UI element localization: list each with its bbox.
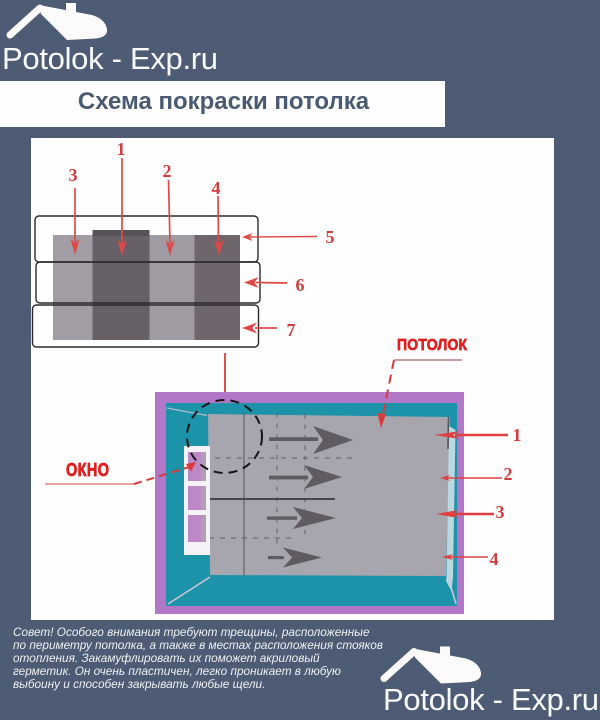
- svg-text:5: 5: [326, 227, 335, 247]
- svg-text:ОКНО: ОКНО: [66, 459, 109, 480]
- svg-text:1: 1: [117, 139, 126, 159]
- svg-text:2: 2: [504, 464, 513, 484]
- svg-text:4: 4: [490, 549, 499, 569]
- svg-text:1: 1: [513, 425, 522, 445]
- svg-text:4: 4: [212, 178, 221, 198]
- svg-text:2: 2: [163, 161, 172, 181]
- svg-text:6: 6: [296, 275, 305, 295]
- svg-text:3: 3: [496, 502, 505, 522]
- svg-text:ПОТОЛОК: ПОТОЛОК: [397, 336, 468, 354]
- svg-text:7: 7: [287, 320, 296, 340]
- svg-text:3: 3: [69, 165, 78, 185]
